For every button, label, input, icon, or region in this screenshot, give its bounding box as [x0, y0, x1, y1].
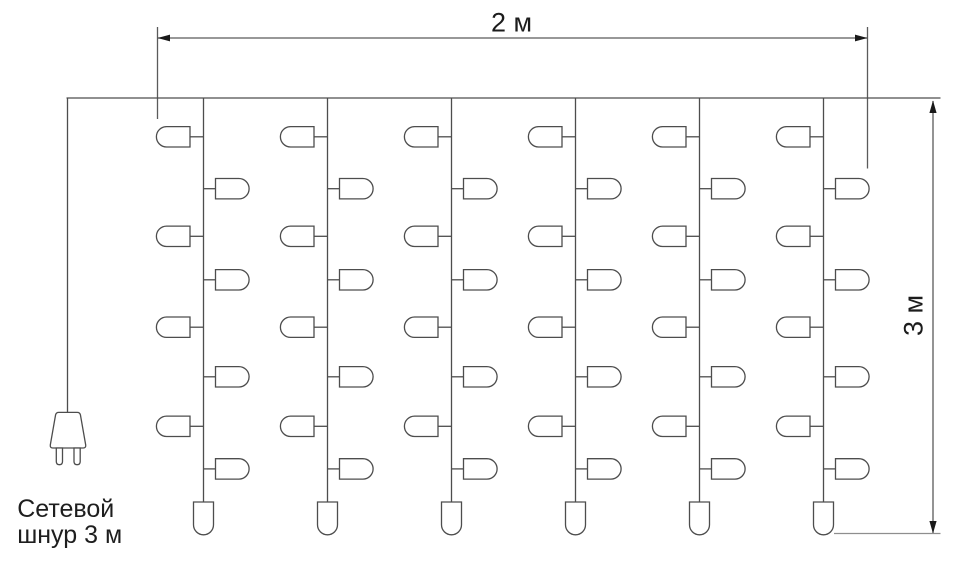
svg-text:3 м: 3 м — [899, 295, 929, 336]
svg-text:шнур 3 м: шнур 3 м — [17, 521, 122, 549]
svg-text:2 м: 2 м — [491, 7, 532, 37]
svg-text:Сетевой: Сетевой — [17, 495, 114, 523]
